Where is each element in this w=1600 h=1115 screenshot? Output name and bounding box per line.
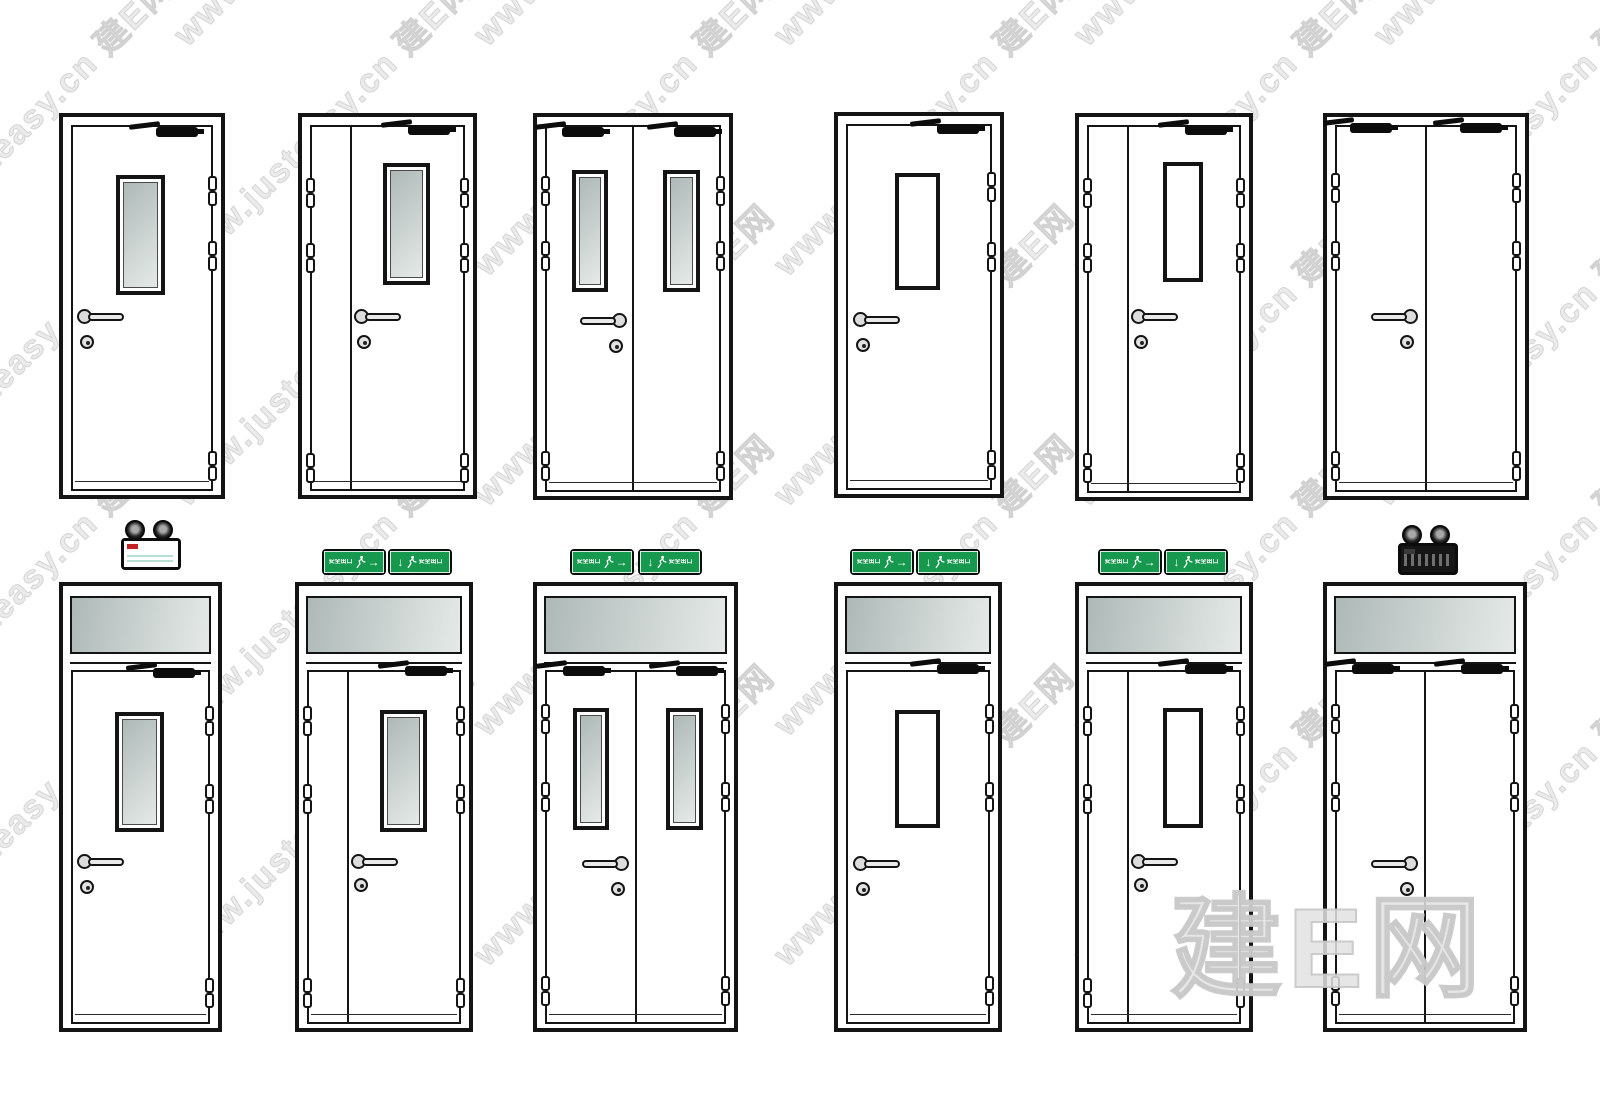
exit-sign-face: 安全出口 →: [572, 551, 632, 573]
door-hinge: [716, 176, 725, 206]
emergency-light-panel: [124, 541, 178, 567]
door-handle: [1370, 309, 1418, 325]
door-hinge: [1510, 704, 1519, 734]
door-single-unglazed: [834, 112, 1004, 498]
door-closer: [674, 127, 716, 137]
door-sill-line: [1091, 1014, 1237, 1015]
lock-cylinder: [80, 880, 94, 894]
door-handle: [853, 312, 901, 328]
arrow-down-icon: ↓: [926, 556, 932, 568]
door-handle: [1370, 856, 1418, 872]
running-man-icon: [656, 555, 667, 569]
door-hinge: [1512, 451, 1521, 481]
arrow-right-icon: →: [368, 556, 380, 568]
door-hinge: [1331, 173, 1340, 203]
exit-sign-face: ↓ 安全出口: [390, 551, 450, 573]
arrow-right-icon: →: [1144, 556, 1156, 568]
vision-glass: [673, 715, 696, 823]
door-hinge: [1083, 453, 1092, 483]
door-hinge: [1510, 782, 1519, 812]
door-hinge: [208, 176, 217, 206]
arrow-down-icon: ↓: [398, 556, 404, 568]
door-hinge: [721, 976, 730, 1006]
handle-lever: [1371, 860, 1407, 868]
door-sill-line: [1339, 1014, 1511, 1015]
door-single-glazed-transom: [59, 582, 222, 1032]
door-hinge: [1083, 178, 1092, 208]
lock-cylinder: [80, 335, 94, 349]
door-hinge: [987, 242, 996, 272]
exit-sign-label: 安全出口: [329, 559, 353, 565]
door-closer: [405, 666, 447, 676]
watermark-tile: www.justeasy.cn 建E网: [1060, 0, 1383, 55]
door-hinge: [985, 704, 994, 734]
watermark-tile: www.justeasy.cn 建E网: [1360, 0, 1600, 55]
lock-cylinder: [1134, 335, 1148, 349]
door-hinge: [205, 706, 214, 736]
watermark-tile: www.justeasy.cn 建E网: [460, 0, 783, 55]
red-label: [127, 544, 138, 549]
exit-sign-face: 安全出口 →: [852, 551, 912, 573]
transom-rail: [544, 662, 727, 664]
door-hinge: [716, 241, 725, 271]
door-double-glazed-transom: [533, 582, 738, 1032]
door-single-unglazed-transom: [834, 582, 1002, 1032]
door-hinge: [208, 451, 217, 481]
vision-window-unglazed: [1163, 162, 1203, 282]
arrow-down-icon: ↓: [1174, 556, 1180, 568]
door-leaf: [1335, 125, 1517, 492]
vision-window-unglazed: [895, 173, 940, 290]
vision-window: [573, 708, 609, 830]
running-man-icon: [1131, 555, 1142, 569]
exit-sign-label: 安全出口: [577, 559, 601, 565]
exit-sign-label: 安全出口: [947, 559, 971, 565]
door-closer: [1185, 125, 1227, 135]
door-double-plain: [1323, 113, 1529, 500]
door-hinge: [1331, 782, 1340, 812]
running-man-icon: [934, 555, 945, 569]
door-leaf-and-half-unglazed: [1075, 113, 1253, 501]
label-lines: [127, 555, 173, 564]
arrow-down-icon: ↓: [648, 556, 654, 568]
arrow-right-icon: →: [616, 556, 628, 568]
watermark-tile: www.justeasy.cn 建E网: [760, 0, 1083, 55]
running-man-icon: [355, 555, 366, 569]
handle-lever: [365, 313, 401, 321]
door-hinge: [1236, 178, 1245, 208]
door-handle: [1131, 309, 1179, 325]
door-closer: [937, 664, 979, 674]
vision-window-unglazed: [1163, 708, 1203, 828]
exit-sign-right: 安全出口 →: [570, 549, 634, 575]
door-closer: [1460, 123, 1502, 133]
door-sill-line: [75, 481, 209, 482]
emergency-lamp-icon: [1402, 525, 1422, 545]
door-sill-line: [549, 482, 717, 483]
exit-sign-label: 安全出口: [419, 559, 443, 565]
door-sill-line: [850, 480, 988, 481]
door-hinge: [985, 782, 994, 812]
door-hinge: [1331, 451, 1340, 481]
handle-lever: [1142, 313, 1178, 321]
vision-glass: [579, 177, 601, 285]
door-closer: [563, 666, 605, 676]
handle-lever: [88, 858, 124, 866]
exit-sign-label: 安全出口: [1105, 559, 1129, 565]
door-hinge: [541, 241, 550, 271]
handle-lever: [1142, 858, 1178, 866]
exit-sign-down: ↓ 安全出口: [638, 549, 702, 575]
emergency-light-dark: [1398, 525, 1458, 577]
door-hinge: [456, 706, 465, 736]
door-hinge: [987, 450, 996, 480]
exit-sign-face: ↓ 安全出口: [640, 551, 700, 573]
vision-glass: [670, 177, 693, 285]
door-handle: [354, 309, 402, 325]
handle-lever: [1371, 313, 1407, 321]
running-man-icon: [1182, 555, 1193, 569]
door-leaf-and-half-glazed-transom: [295, 582, 473, 1032]
meeting-stile: [632, 127, 634, 490]
meeting-stile: [350, 127, 352, 489]
door-closer: [937, 124, 979, 134]
door-hinge: [1331, 704, 1340, 734]
door-leaf-and-half-glazed: [298, 113, 477, 499]
door-hinge: [716, 451, 725, 481]
watermark-tile: www.justeasy.cn 建E网: [0, 0, 183, 55]
door-closer: [1352, 664, 1394, 674]
lock-cylinder: [1400, 335, 1414, 349]
watermark-tile: www.justeasy.cn 建E网: [160, 0, 483, 55]
fire-door-drawing-sheet: www.justeasy.cn 建E网 www.justeasy.cn 建E网 …: [0, 0, 1600, 1115]
door-sill-line: [850, 1014, 986, 1015]
running-man-icon: [603, 555, 614, 569]
door-hinge: [460, 453, 469, 483]
meeting-stile: [1127, 127, 1129, 491]
door-closer: [408, 125, 450, 135]
door-hinge: [1236, 706, 1245, 736]
exit-sign-label: 安全出口: [857, 559, 881, 565]
emergency-lamp-icon: [125, 520, 145, 540]
door-closer: [562, 127, 604, 137]
label-lines: [1404, 554, 1450, 566]
door-hinge: [1512, 173, 1521, 203]
door-handle: [351, 854, 399, 870]
door-hinge: [541, 451, 550, 481]
vision-window: [572, 170, 608, 292]
door-hinge: [1083, 243, 1092, 273]
vision-window: [116, 175, 165, 295]
door-hinge: [460, 178, 469, 208]
transom-glass: [1086, 596, 1242, 654]
handle-lever: [88, 313, 124, 321]
door-sill-line: [1091, 483, 1237, 484]
handle-lever: [864, 316, 900, 324]
meeting-stile: [347, 672, 349, 1022]
door-hinge: [306, 243, 315, 273]
door-hinge: [985, 976, 994, 1006]
transom-glass: [1334, 596, 1516, 654]
door-handle: [77, 309, 125, 325]
transom-glass: [845, 596, 991, 654]
vision-window: [666, 708, 703, 830]
door-leaf: [1335, 670, 1515, 1024]
door-hinge: [1083, 978, 1092, 1008]
door-hinge: [456, 784, 465, 814]
vision-glass: [122, 719, 157, 825]
door-hinge: [721, 782, 730, 812]
door-hinge: [306, 178, 315, 208]
exit-sign-down: ↓ 安全出口: [916, 549, 980, 575]
emergency-lamp-icon: [153, 520, 173, 540]
door-double-plain-transom: [1323, 582, 1527, 1032]
transom-glass: [544, 596, 727, 654]
door-handle: [579, 313, 627, 329]
door-closer: [1461, 664, 1503, 674]
emergency-light: [121, 520, 181, 572]
door-sill-line: [1339, 482, 1513, 483]
door-hinge: [460, 243, 469, 273]
vision-glass: [387, 717, 420, 825]
door-hinge: [1236, 978, 1245, 1008]
door-hinge: [1236, 453, 1245, 483]
door-hinge: [303, 978, 312, 1008]
door-handle: [853, 856, 901, 872]
door-hinge: [306, 453, 315, 483]
exit-sign-down: ↓ 安全出口: [388, 549, 452, 575]
door-closer: [153, 668, 195, 678]
door-hinge: [205, 978, 214, 1008]
vision-glass: [580, 715, 602, 823]
exit-sign-face: 安全出口 →: [1100, 551, 1160, 573]
meeting-stile: [1424, 672, 1426, 1022]
lock-cylinder: [357, 335, 371, 349]
lock-cylinder: [1400, 882, 1414, 896]
running-man-icon: [883, 555, 894, 569]
door-sill-line: [549, 1014, 722, 1015]
door-hinge: [541, 704, 550, 734]
door-closer: [156, 127, 198, 137]
door-hinge: [541, 782, 550, 812]
emergency-light-body: [1398, 543, 1458, 575]
lock-cylinder: [354, 878, 368, 892]
door-sill-line: [314, 481, 461, 482]
door-sill-line: [75, 1014, 206, 1015]
meeting-stile: [635, 672, 637, 1022]
vision-glass: [123, 182, 158, 288]
door-hinge: [208, 241, 217, 271]
emergency-light-panel: [1401, 546, 1455, 572]
vision-window-unglazed: [895, 710, 940, 828]
lock-cylinder: [609, 339, 623, 353]
door-hinge: [541, 176, 550, 206]
meeting-stile: [1127, 672, 1129, 1022]
door-hinge: [1512, 241, 1521, 271]
vision-window: [663, 170, 700, 292]
door-hinge: [1510, 976, 1519, 1006]
exit-sign-face: ↓ 安全出口: [1166, 551, 1226, 573]
door-handle: [1131, 854, 1179, 870]
transom-glass: [306, 596, 462, 654]
vision-window: [115, 712, 164, 832]
emergency-lamp-icon: [1430, 525, 1450, 545]
door-hinge: [1331, 976, 1340, 1006]
door-single-glazed: [59, 113, 225, 499]
exit-sign-right: 安全出口 →: [322, 549, 386, 575]
lock-cylinder: [1134, 878, 1148, 892]
door-hinge: [1236, 784, 1245, 814]
door-closer: [1185, 664, 1227, 674]
exit-sign-face: 安全出口 →: [324, 551, 384, 573]
door-hinge: [1083, 784, 1092, 814]
lock-cylinder: [856, 882, 870, 896]
door-hinge: [1236, 243, 1245, 273]
door-hinge: [1331, 241, 1340, 271]
vision-window: [383, 163, 430, 285]
meeting-stile: [1425, 127, 1427, 490]
handle-lever: [580, 317, 616, 325]
arrow-right-icon: →: [896, 556, 908, 568]
door-hinge: [1083, 706, 1092, 736]
door-leaf-and-half-unglazed-transom: [1075, 582, 1253, 1032]
door-closer: [1350, 123, 1392, 133]
handle-lever: [582, 860, 618, 868]
door-hinge: [721, 704, 730, 734]
handle-lever: [362, 858, 398, 866]
door-sill-line: [311, 1014, 457, 1015]
exit-sign-right: 安全出口 →: [850, 549, 914, 575]
lock-cylinder: [856, 338, 870, 352]
door-hinge: [987, 172, 996, 202]
vision-window: [380, 710, 427, 832]
door-handle: [581, 856, 629, 872]
emergency-light-body: [121, 538, 181, 570]
door-hinge: [456, 978, 465, 1008]
exit-sign-label: 安全出口: [1195, 559, 1219, 565]
transom-glass: [70, 596, 211, 654]
running-man-icon: [406, 555, 417, 569]
exit-sign-down: ↓ 安全出口: [1164, 549, 1228, 575]
handle-lever: [864, 860, 900, 868]
door-double-glazed: [533, 113, 733, 500]
door-hinge: [303, 706, 312, 736]
lock-cylinder: [611, 882, 625, 896]
door-hinge: [541, 976, 550, 1006]
door-hinge: [205, 784, 214, 814]
exit-sign-label: 安全出口: [669, 559, 693, 565]
exit-sign-right: 安全出口 →: [1098, 549, 1162, 575]
exit-sign-face: ↓ 安全出口: [918, 551, 978, 573]
door-handle: [77, 854, 125, 870]
door-closer: [676, 666, 718, 676]
door-hinge: [303, 784, 312, 814]
vision-glass: [390, 170, 423, 278]
